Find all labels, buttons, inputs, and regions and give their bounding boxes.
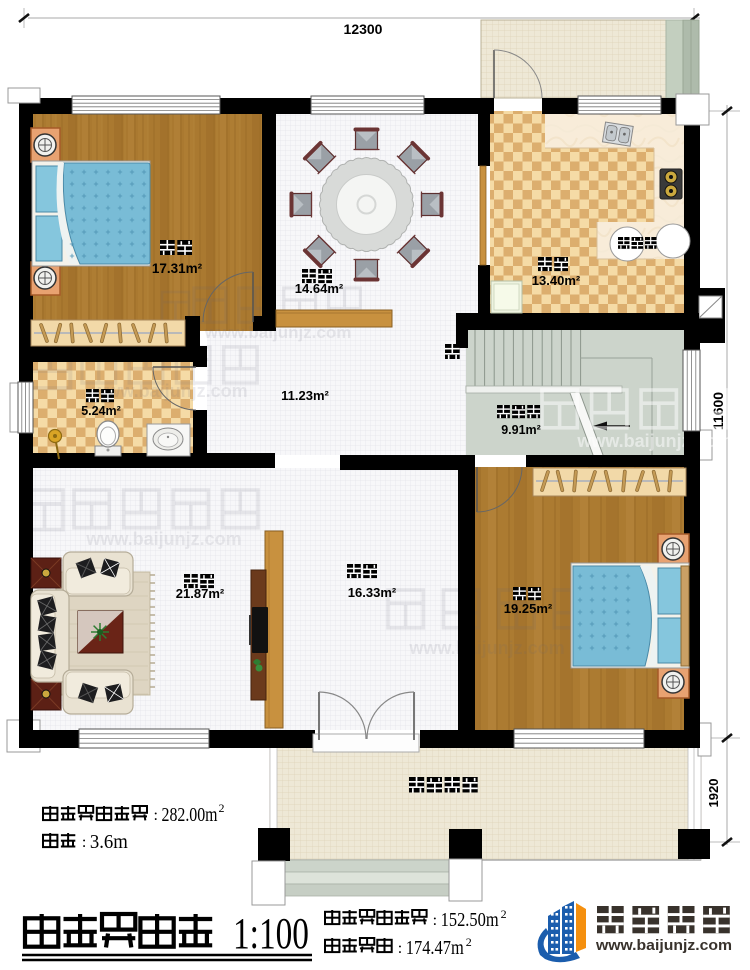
svg-text:9.91m²: 9.91m² — [501, 423, 541, 437]
svg-text::: : — [433, 912, 437, 929]
svg-text:2: 2 — [501, 907, 507, 921]
svg-text:www.baijunjz.com: www.baijunjz.com — [91, 381, 247, 401]
svg-text:12300: 12300 — [344, 21, 383, 37]
svg-text:16.33m²: 16.33m² — [348, 585, 397, 600]
svg-text:2: 2 — [466, 935, 472, 949]
svg-text:21.87m²: 21.87m² — [176, 586, 225, 601]
svg-text:www.baijunjz.com: www.baijunjz.com — [595, 937, 732, 954]
svg-text:www.baijunjz.com: www.baijunjz.com — [85, 529, 241, 549]
svg-text::: : — [82, 834, 86, 851]
svg-text:www.baijunjz.com: www.baijunjz.com — [408, 638, 564, 658]
svg-text:174.47m: 174.47m — [406, 937, 464, 959]
svg-text:5.24m²: 5.24m² — [81, 404, 121, 418]
svg-text:11600: 11600 — [710, 392, 726, 430]
svg-text:3.6m: 3.6m — [90, 831, 128, 853]
svg-text::: : — [398, 940, 402, 957]
svg-text:152.50m: 152.50m — [441, 909, 499, 931]
svg-text:13.40m²: 13.40m² — [532, 273, 581, 288]
svg-text:1:100: 1:100 — [233, 909, 309, 958]
svg-text:14.64m²: 14.64m² — [295, 281, 344, 296]
svg-text:2: 2 — [219, 801, 225, 815]
svg-text:11.23m²: 11.23m² — [281, 388, 329, 403]
svg-text::: : — [154, 807, 158, 824]
svg-text:282.00m: 282.00m — [162, 804, 218, 826]
svg-text:www.baijunjz.com: www.baijunjz.com — [576, 431, 732, 451]
svg-text:19.25m²: 19.25m² — [504, 601, 553, 616]
svg-text:17.31m²: 17.31m² — [152, 261, 203, 276]
svg-text:1920: 1920 — [706, 779, 721, 808]
